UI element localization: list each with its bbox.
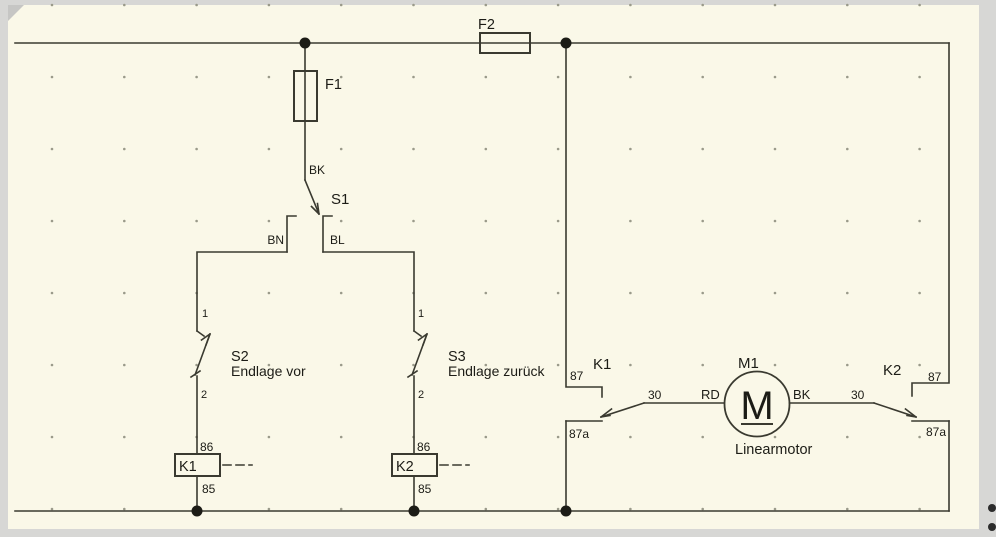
wire-bl-label: BL: [330, 233, 345, 247]
edge-dot-1: [988, 504, 996, 512]
k1-coil-85: 85: [202, 482, 216, 496]
motor-m1-label: M1: [738, 355, 759, 372]
s3-terminal-1: 1: [418, 308, 424, 320]
k1-contact-30: 30: [648, 388, 662, 402]
k2-coil-86: 86: [417, 440, 431, 454]
s3-terminal-2: 2: [418, 389, 424, 401]
s2-terminal-2: 2: [201, 389, 207, 401]
switch-s2-desc: Endlage vor: [231, 363, 306, 379]
k2-contact-87: 87: [928, 370, 942, 384]
fuse-f2-label: F2: [478, 17, 495, 33]
k1-contact-label: K1: [593, 356, 611, 373]
wire-bn-label: BN: [267, 233, 284, 247]
switch-s1-label: S1: [331, 191, 349, 208]
k2-contact-label: K2: [883, 362, 901, 379]
edge-dot-2: [988, 523, 996, 531]
motor-m1-desc: Linearmotor: [735, 442, 813, 458]
k2-coil-label: K2: [396, 459, 414, 475]
k1-contact-87: 87: [570, 369, 584, 383]
wire-rd-label: RD: [701, 387, 720, 402]
motor-letter: M: [740, 384, 773, 428]
wire-bk-motor-label: BK: [793, 387, 811, 402]
k2-contact-30: 30: [851, 388, 865, 402]
s2-terminal-1: 1: [202, 308, 208, 320]
wire-bk-label: BK: [309, 163, 325, 177]
k1-contact-87a: 87a: [569, 427, 589, 441]
schematic-screenshot: F2 F1 BK S1 BN BL 1 2 S2 Endlage vor 1 2…: [0, 0, 996, 537]
fuse-f1-label: F1: [325, 77, 342, 93]
k2-coil-85: 85: [418, 482, 432, 496]
schematic-canvas: [8, 5, 979, 529]
schematic-svg: F2 F1 BK S1 BN BL 1 2 S2 Endlage vor 1 2…: [0, 0, 996, 537]
k1-coil-86: 86: [200, 440, 214, 454]
switch-s3-desc: Endlage zurück: [448, 363, 546, 379]
k1-coil-label: K1: [179, 459, 197, 475]
k2-contact-87a: 87a: [926, 425, 946, 439]
